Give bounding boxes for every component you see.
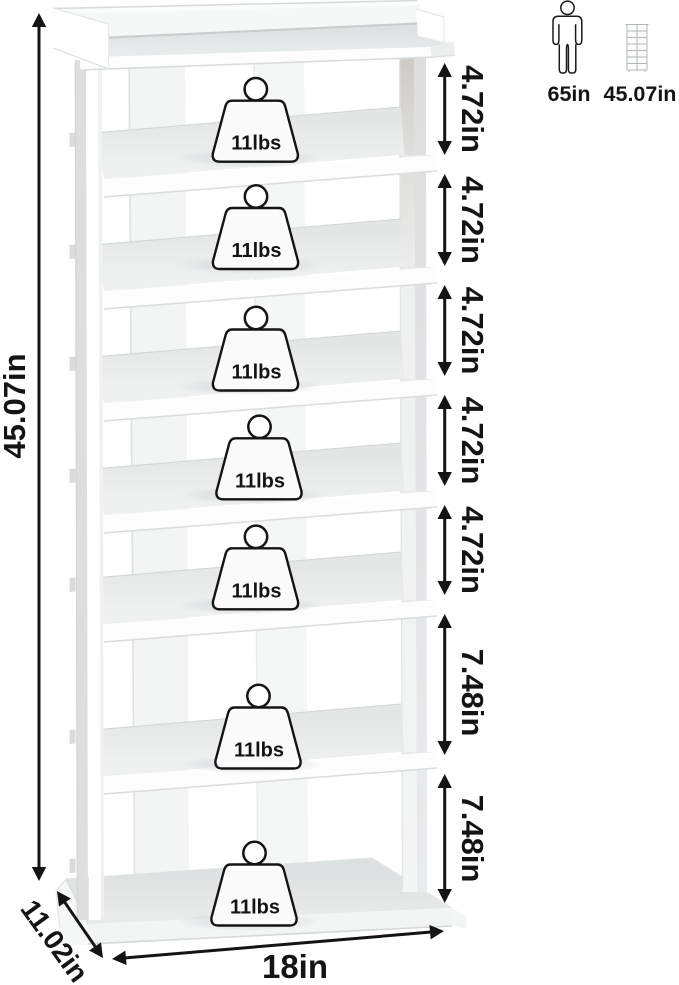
svg-text:11lbs: 11lbs [235,470,285,492]
svg-text:11lbs: 11lbs [231,580,281,602]
svg-text:4.72in: 4.72in [455,287,490,375]
svg-text:4.72in: 4.72in [455,65,490,153]
svg-text:65in: 65in [547,82,590,106]
svg-text:11lbs: 11lbs [231,133,281,155]
svg-text:11lbs: 11lbs [230,897,280,919]
svg-text:18in: 18in [262,948,328,985]
svg-text:7.48in: 7.48in [455,795,490,883]
svg-text:7.48in: 7.48in [455,649,490,737]
svg-text:11lbs: 11lbs [231,240,281,262]
svg-text:11lbs: 11lbs [231,362,281,384]
svg-text:45.07in: 45.07in [0,353,32,458]
svg-text:4.72in: 4.72in [455,176,490,264]
svg-text:45.07in: 45.07in [604,82,677,106]
svg-text:11lbs: 11lbs [234,740,284,762]
svg-text:4.72in: 4.72in [455,397,490,485]
svg-text:4.72in: 4.72in [455,506,490,594]
